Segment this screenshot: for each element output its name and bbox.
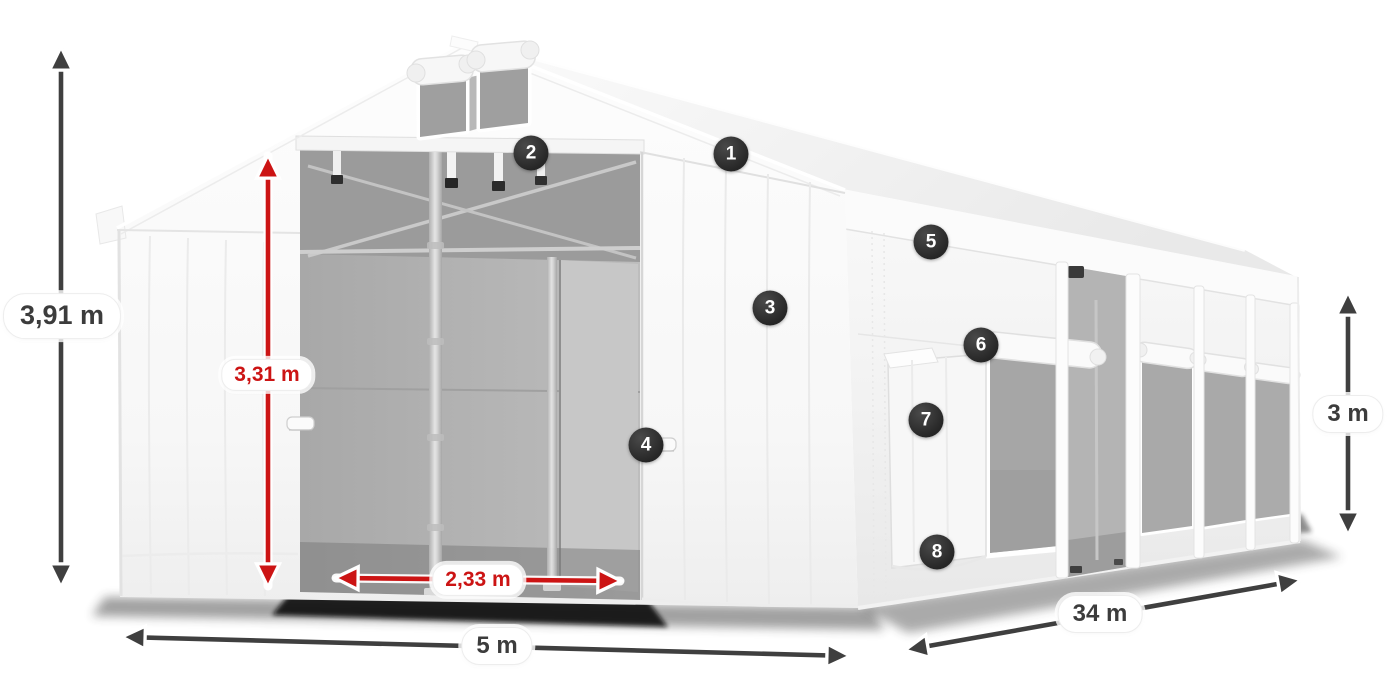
dimension-label-door-height: 3,31 m: [221, 359, 312, 391]
tent-illustration: [0, 0, 1400, 700]
dimension-label-front-width: 5 m: [461, 627, 532, 665]
interior-far-doorway: [560, 260, 638, 592]
dimension-label-side-height: 3 m: [1312, 395, 1383, 433]
gable-vent-left: [407, 54, 480, 137]
door-corner-bracket: [1068, 266, 1084, 278]
door-handle-left: [287, 417, 314, 430]
callout-badge-4: 4: [629, 428, 664, 463]
dimension-label-total-height: 3,91 m: [3, 293, 121, 339]
callout-badge-6: 6: [964, 328, 999, 363]
callout-badge-7: 7: [909, 403, 944, 438]
side-doorway: [1068, 266, 1126, 577]
callout-badge-1: 1: [714, 137, 749, 172]
dimension-label-door-width: 2,33 m: [432, 564, 523, 596]
callout-badge-2: 2: [514, 136, 549, 171]
side-window-1: [1133, 341, 1202, 533]
front-opening-interior: [300, 140, 640, 602]
callout-badge-8: 8: [920, 535, 955, 570]
callout-badge-5: 5: [914, 225, 949, 260]
gable-vent-right: [467, 40, 539, 129]
dimension-label-side-length: 34 m: [1058, 595, 1143, 633]
callout-badge-3: 3: [753, 291, 788, 326]
tent-dimension-diagram: 3,91 m 3,31 m 2,33 m 5 m 34 m 3 m 1 2 3 …: [0, 0, 1400, 700]
